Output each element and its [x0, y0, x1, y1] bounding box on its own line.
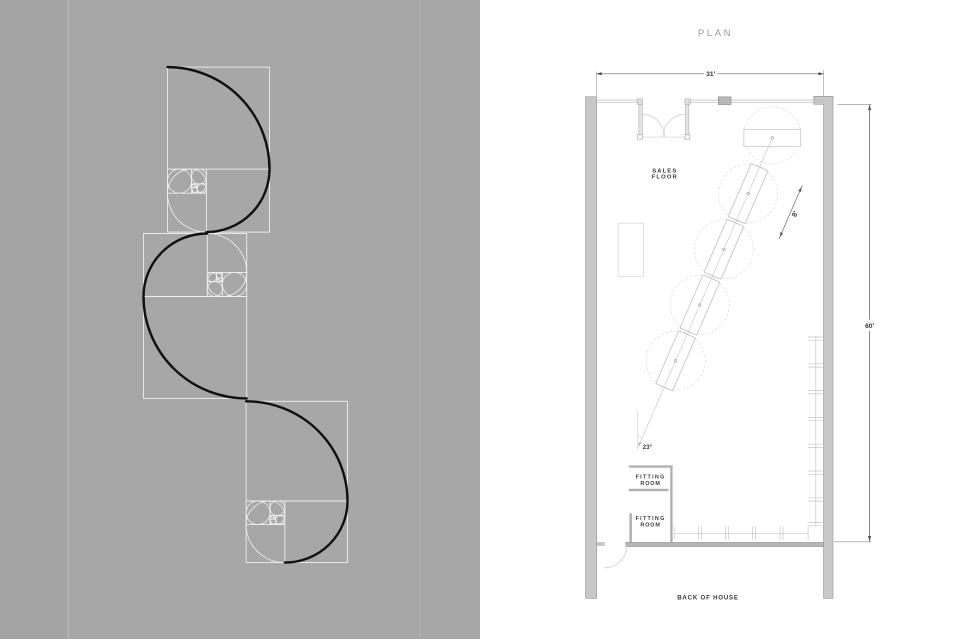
svg-text:PLAN: PLAN [698, 28, 733, 39]
svg-text:FLOOR: FLOOR [652, 175, 678, 181]
svg-text:FITTING: FITTING [636, 516, 666, 522]
svg-text:FITTING: FITTING [636, 474, 666, 480]
svg-text:8′: 8′ [791, 210, 800, 218]
svg-text:ROOM: ROOM [640, 523, 660, 529]
svg-text:BACK OF HOUSE: BACK OF HOUSE [677, 594, 739, 601]
svg-text:23°: 23° [643, 444, 653, 451]
svg-text:60′: 60′ [865, 323, 874, 330]
svg-text:31′: 31′ [706, 71, 715, 78]
svg-text:SALES: SALES [652, 168, 677, 174]
svg-text:ROOM: ROOM [640, 481, 660, 487]
